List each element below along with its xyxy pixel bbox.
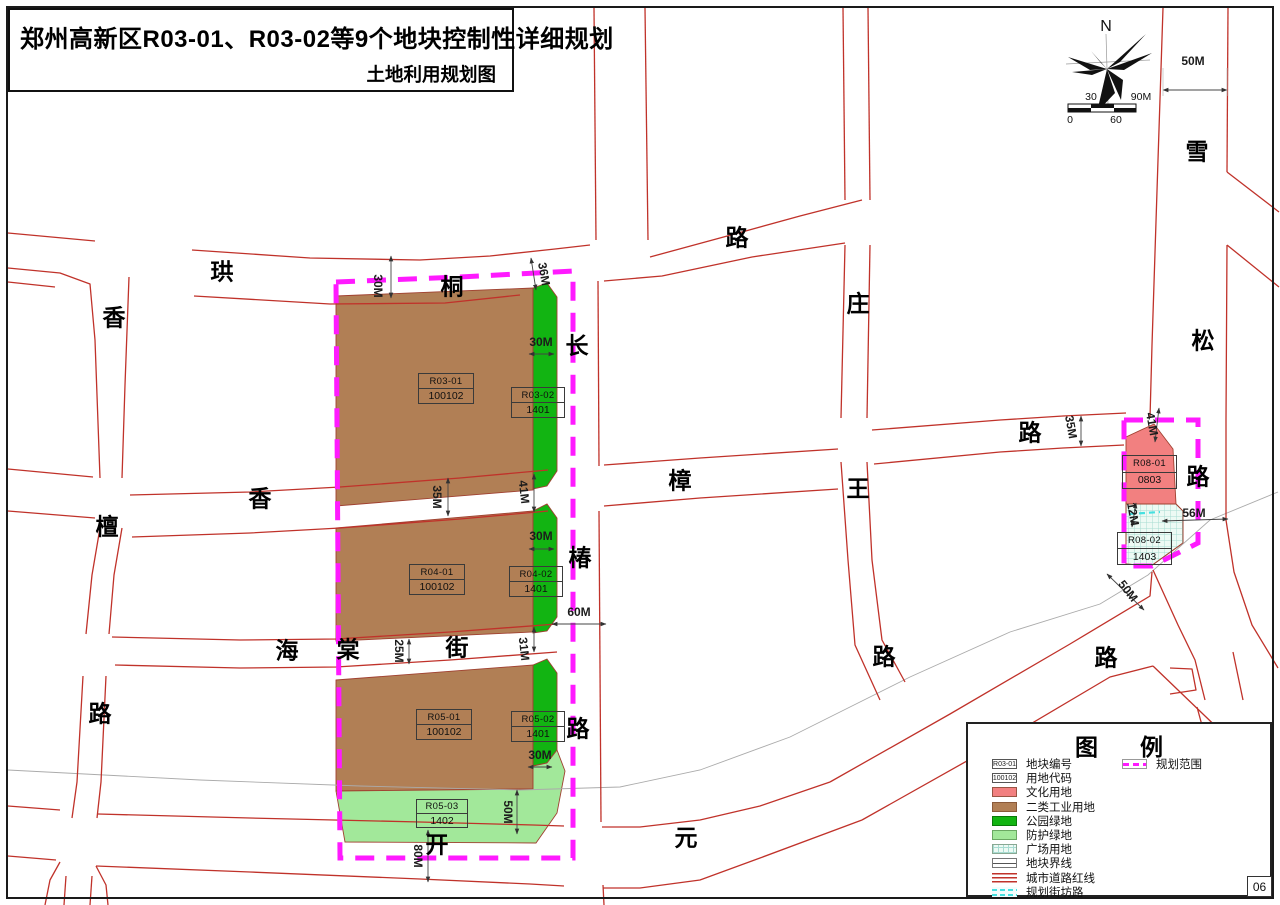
road-name-char: 路 <box>873 646 896 669</box>
parcel-id: R05-01 <box>417 710 471 725</box>
road-name-char: 开 <box>426 834 449 857</box>
legend: 图例 R03-01地块编号100102用地代码文化用地二类工业用地公园绿地防护绿… <box>966 722 1272 897</box>
legend-swatch-culture <box>992 787 1017 797</box>
road-name-char: 路 <box>1019 422 1042 445</box>
parcel-code: 1403 <box>1118 549 1171 564</box>
legend-item: 广场用地 <box>992 842 1095 856</box>
road-name-char: 元 <box>675 827 698 850</box>
dimension-label: 36M <box>536 261 552 286</box>
legend-swatch-plaza <box>992 844 1017 854</box>
north-label: N <box>1100 18 1112 36</box>
dimension-label: 50M <box>1181 55 1204 67</box>
dimension-label: 31M <box>517 637 531 661</box>
legend-item: R03-01地块编号 <box>992 757 1095 771</box>
parcel-label: R03-01100102 <box>418 373 474 404</box>
dimension-label: 12M <box>1125 501 1141 526</box>
legend-swatch-parcel-id: R03-01 <box>992 759 1017 769</box>
road-name-char: 香 <box>249 488 272 511</box>
plan-title: 郑州高新区R03-01、R03-02等9个地块控制性详细规划 <box>10 10 512 54</box>
scale-tick-label: 0 <box>1067 114 1073 126</box>
legend-swatch-planned-lane <box>992 887 1017 897</box>
dimension-label: 25M <box>393 639 405 662</box>
legend-swatch-park-green <box>992 816 1017 826</box>
road-name-char: 街 <box>446 637 469 660</box>
legend-column-2: 规划范围 <box>1122 757 1202 771</box>
parcel-code: 1402 <box>417 814 467 827</box>
legend-swatch-buffer-green <box>992 830 1017 840</box>
dimension-label: 35M <box>1063 414 1079 439</box>
dimension-label: 41M <box>1144 411 1160 436</box>
parcel-id: R08-01 <box>1123 456 1176 473</box>
dimension-label: 80M <box>412 844 424 867</box>
parcel-id: R04-01 <box>410 565 464 580</box>
parcel-id: R04-02 <box>510 567 562 582</box>
parcel-label: R03-021401 <box>511 387 565 418</box>
road-name-char: 路 <box>726 227 749 250</box>
road-name-char: 路 <box>567 718 590 741</box>
road-name-char: 檀 <box>96 516 119 539</box>
road-name-char: 长 <box>566 335 589 358</box>
road-name-char: 松 <box>1192 330 1215 353</box>
legend-item-label: 规划范围 <box>1156 756 1202 772</box>
road-name-char: 桐 <box>441 276 464 299</box>
road-name-char: 椿 <box>569 547 592 570</box>
legend-item: 地块界线 <box>992 856 1095 870</box>
road-name-char: 路 <box>1187 466 1210 489</box>
scale-tick-label: 60 <box>1110 114 1122 126</box>
legend-item: 规划范围 <box>1122 757 1202 771</box>
scale-tick-label: 30 <box>1085 91 1097 103</box>
legend-swatch-planning-scope <box>1122 759 1147 769</box>
parcel-code: 100102 <box>410 580 464 594</box>
road-name-char: 棠 <box>337 639 360 662</box>
legend-item: 文化用地 <box>992 785 1095 799</box>
parcel-label: R05-021401 <box>511 711 565 742</box>
parcel-label: R08-021403 <box>1117 532 1172 565</box>
legend-item: 二类工业用地 <box>992 800 1095 814</box>
legend-swatch-industry2 <box>992 802 1017 812</box>
legend-swatch-road-redline <box>992 873 1017 883</box>
legend-item: 100102用地代码 <box>992 771 1095 785</box>
parcel-code: 1401 <box>512 403 564 417</box>
dimension-label: 30M <box>528 749 551 761</box>
dimension-label: 56M <box>1182 507 1205 519</box>
legend-item-label: 规划街坊路 <box>1026 884 1084 900</box>
parcel-code: 100102 <box>417 725 471 739</box>
legend-item: 规划街坊路 <box>992 885 1095 899</box>
parcel-label: R08-010803 <box>1122 455 1177 489</box>
page-number-badge: 06 <box>1247 876 1272 897</box>
legend-swatch-parcel-line <box>992 858 1017 868</box>
parcel-id: R05-03 <box>417 800 467 814</box>
parcel-id: R03-01 <box>419 374 473 389</box>
dimension-label: 35M <box>431 485 443 508</box>
parcel-label: R04-01100102 <box>409 564 465 595</box>
parcel-code: 1401 <box>510 582 562 596</box>
parcel-label: R05-01100102 <box>416 709 472 740</box>
legend-item: 防护绿地 <box>992 828 1095 842</box>
parcel-label: R04-021401 <box>509 566 563 597</box>
legend-swatch-land-code: 100102 <box>992 773 1017 783</box>
dimension-label: 30M <box>372 274 384 297</box>
road-name-char: 雪 <box>1186 141 1209 164</box>
road-name-char: 路 <box>89 703 112 726</box>
title-block: 郑州高新区R03-01、R03-02等9个地块控制性详细规划 土地利用规划图 <box>8 8 514 92</box>
road-name-char: 王 <box>847 478 870 501</box>
dimension-label: 41M <box>517 480 531 504</box>
plan-subtitle: 土地利用规划图 <box>10 61 512 87</box>
land-use-planning-map: 珙桐路香檀路香樟路海棠街长椿路庄王路雪松路开元路50M30M36M30M35M4… <box>0 0 1280 905</box>
road-name-char: 香 <box>103 307 126 330</box>
dimension-label: 30M <box>529 530 552 542</box>
parcel-id: R08-02 <box>1118 533 1171 549</box>
parcel-id: R05-02 <box>512 712 564 727</box>
dimension-label: 50M <box>1116 578 1140 604</box>
parcel-label: R05-031402 <box>416 799 468 828</box>
road-name-char: 路 <box>1095 647 1118 670</box>
road-name-char: 珙 <box>211 261 234 284</box>
legend-item: 城市道路红线 <box>992 871 1095 885</box>
parcel-code: 1401 <box>512 727 564 741</box>
scale-tick-label: 90M <box>1131 91 1151 103</box>
road-name-char: 庄 <box>847 293 870 316</box>
parcel-code: 100102 <box>419 389 473 403</box>
parcel-id: R03-02 <box>512 388 564 403</box>
legend-column-1: R03-01地块编号100102用地代码文化用地二类工业用地公园绿地防护绿地广场… <box>992 757 1095 899</box>
dimension-label: 60M <box>567 606 590 618</box>
road-name-char: 海 <box>276 640 299 663</box>
legend-item: 公园绿地 <box>992 814 1095 828</box>
dimension-label: 50M <box>502 800 514 823</box>
road-name-char: 樟 <box>669 470 692 493</box>
parcel-code: 0803 <box>1123 473 1176 489</box>
dimension-label: 30M <box>529 336 552 348</box>
